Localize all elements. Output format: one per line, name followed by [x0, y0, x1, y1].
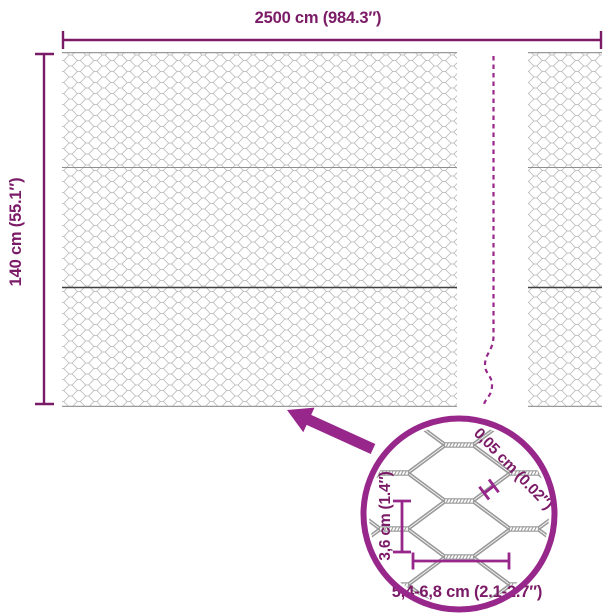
- width-dimension-label: 2500 cm (984.3″): [255, 9, 382, 27]
- width-dimension: 2500 cm (984.3″): [63, 9, 601, 49]
- product-dimension-diagram: 2500 cm (984.3″) 140 cm (55.1″) 0,05 cm …: [0, 0, 614, 614]
- mesh-panel-left: [62, 52, 457, 407]
- height-dimension-label: 140 cm (55.1″): [7, 178, 25, 287]
- height-dimension: 140 cm (55.1″): [7, 54, 54, 404]
- magnifier-arrow-icon: [287, 408, 375, 454]
- mesh-panel-right: [528, 52, 602, 407]
- detail-magnifier-circle: 0,05 cm (0.02″) 3,6 cm (1.4″) 5,4-6,8 cm…: [278, 388, 614, 614]
- detail-cell-height-label: 3,6 cm (1.4″): [377, 471, 394, 560]
- break-dashed-line: [484, 56, 494, 406]
- diagram-canvas: 2500 cm (984.3″) 140 cm (55.1″) 0,05 cm …: [0, 0, 614, 614]
